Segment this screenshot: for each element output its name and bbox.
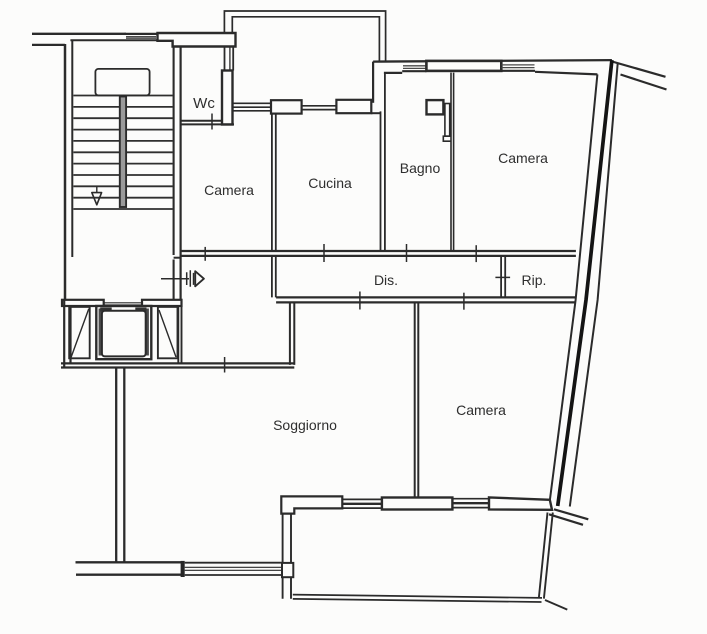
svg-text:Camera: Camera [456, 402, 506, 418]
svg-text:Camera: Camera [498, 150, 548, 166]
svg-text:Wc: Wc [193, 95, 215, 112]
svg-text:Camera: Camera [204, 182, 254, 198]
svg-text:Dis.: Dis. [374, 272, 398, 288]
svg-text:Cucina: Cucina [308, 175, 352, 191]
svg-text:Rip.: Rip. [522, 272, 547, 288]
svg-text:Soggiorno: Soggiorno [273, 417, 337, 433]
svg-text:Bagno: Bagno [400, 160, 441, 176]
